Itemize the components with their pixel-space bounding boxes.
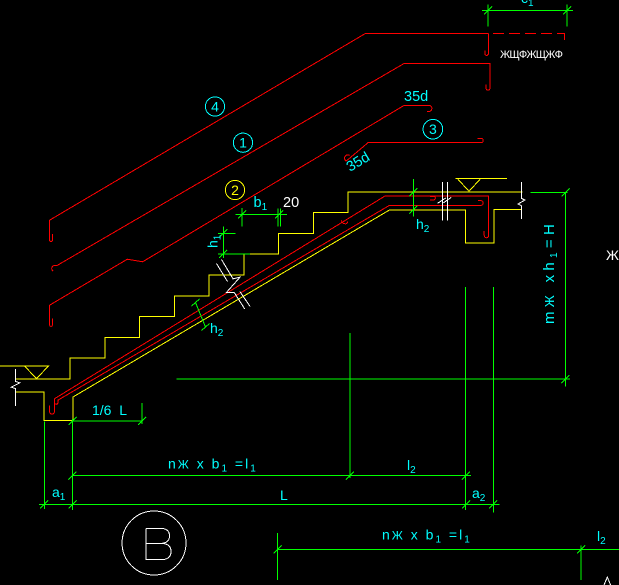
svg-text:2: 2 [231,182,239,198]
svg-text:ЖЩФЖЩЖФ: ЖЩФЖЩЖФ [500,49,563,61]
svg-text:1/6 L: 1/6 L [92,402,127,418]
svg-text:3: 3 [429,121,437,137]
svg-text:35d: 35d [404,89,428,105]
svg-text:1: 1 [239,135,247,151]
svg-text:ЖЩ: ЖЩ [606,247,619,263]
svg-text:20: 20 [283,195,299,211]
svg-text:L: L [280,487,288,503]
svg-text:mЖ xh1=H: mЖ xh1=H [541,220,560,324]
svg-text:4: 4 [211,99,219,115]
